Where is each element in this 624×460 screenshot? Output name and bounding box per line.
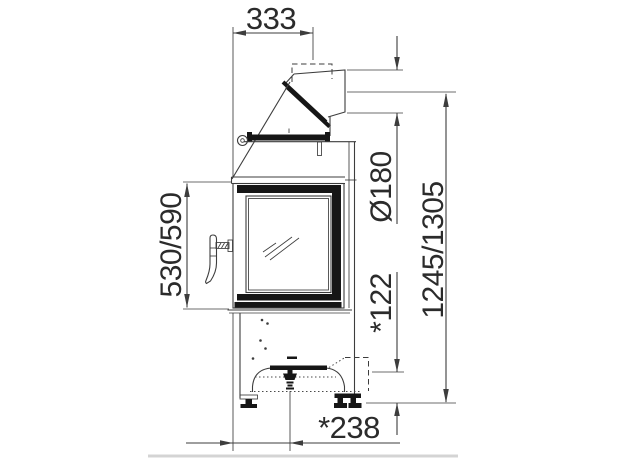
dimension-overall-height: 1245/1305 — [347, 92, 456, 403]
base-slot — [287, 357, 297, 360]
glass-reflection-lines — [263, 237, 299, 260]
fireplace-side-elevation-drawing: 333 Ø180 1245/1305 530/590 *122 — [0, 0, 624, 460]
adjustable-foot-right — [334, 394, 362, 409]
flue-collar — [238, 129, 357, 156]
air-damper-plate — [270, 366, 327, 371]
dimension-flue-diameter: Ø180 — [347, 36, 403, 224]
technical-drawing-canvas: 333 Ø180 1245/1305 530/590 *122 — [0, 0, 624, 460]
door-frame-bottom — [237, 294, 341, 301]
door-frame-right — [332, 193, 341, 297]
door-glass — [246, 196, 331, 293]
firebox-top-plate — [232, 177, 357, 184]
air-intake-stub-hidden — [345, 358, 369, 392]
body-rear-wall — [349, 142, 355, 394]
hearth-lip — [228, 310, 353, 313]
elbow-front-silhouette — [232, 82, 290, 179]
adjustable-foot-left — [240, 395, 258, 408]
pedestal-base — [240, 313, 369, 398]
firebox-door — [233, 184, 344, 309]
air-intake-valve — [283, 369, 297, 390]
dimension-label-flue-diameter: Ø180 — [365, 151, 398, 222]
damper-stem — [318, 142, 322, 156]
door-handle — [206, 235, 233, 284]
dimension-label-333: 333 — [246, 1, 296, 36]
elbow-flange-band-lower — [287, 87, 330, 127]
dimension-label-overall-height: 1245/1305 — [417, 181, 450, 318]
dimension-flue-offset-width: 333 — [233, 1, 313, 177]
dimension-label-air-intake-depth: *238 — [318, 410, 380, 445]
collar-hinge-eye — [238, 136, 248, 146]
base-arch-cutout — [253, 368, 345, 392]
handle-lever — [206, 235, 217, 284]
flue-elbow — [232, 70, 345, 179]
dimension-label-air-intake-height: *122 — [365, 273, 398, 333]
dimension-door-height: 530/590 — [155, 182, 232, 309]
fixing-holes — [252, 319, 269, 360]
dimension-label-door-height: 530/590 — [155, 193, 188, 298]
door-sill — [235, 302, 342, 308]
door-frame-top — [237, 185, 341, 193]
